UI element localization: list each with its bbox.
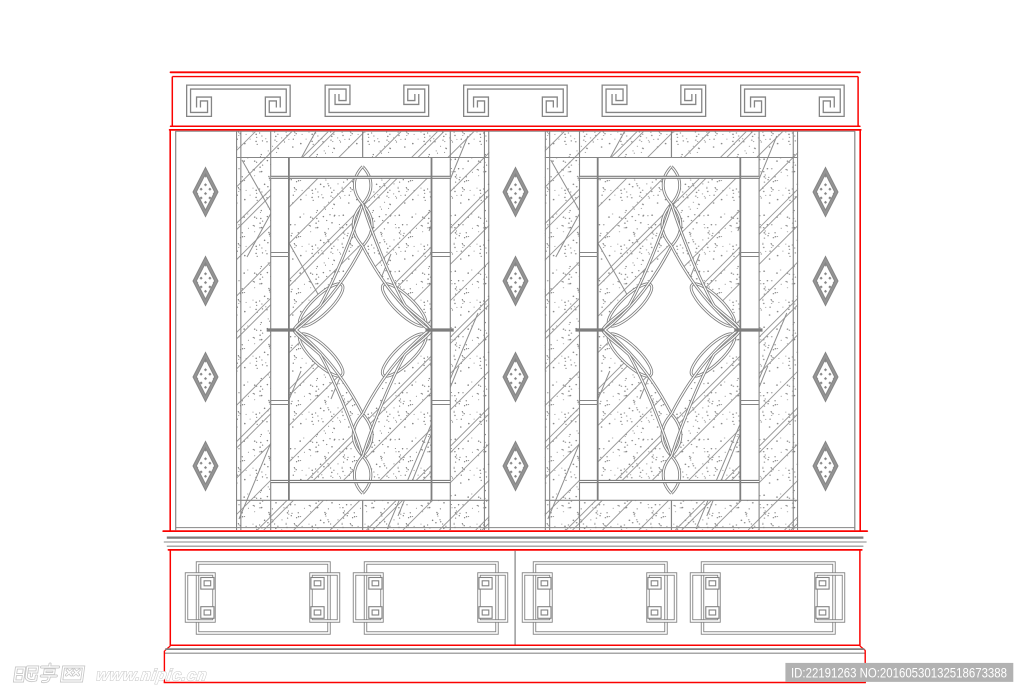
svg-text:ID:22191263 NO:201605301325186: ID:22191263 NO:20160530132518673388	[791, 665, 1007, 680]
svg-text:www.nipic.cn: www.nipic.cn	[95, 666, 208, 685]
